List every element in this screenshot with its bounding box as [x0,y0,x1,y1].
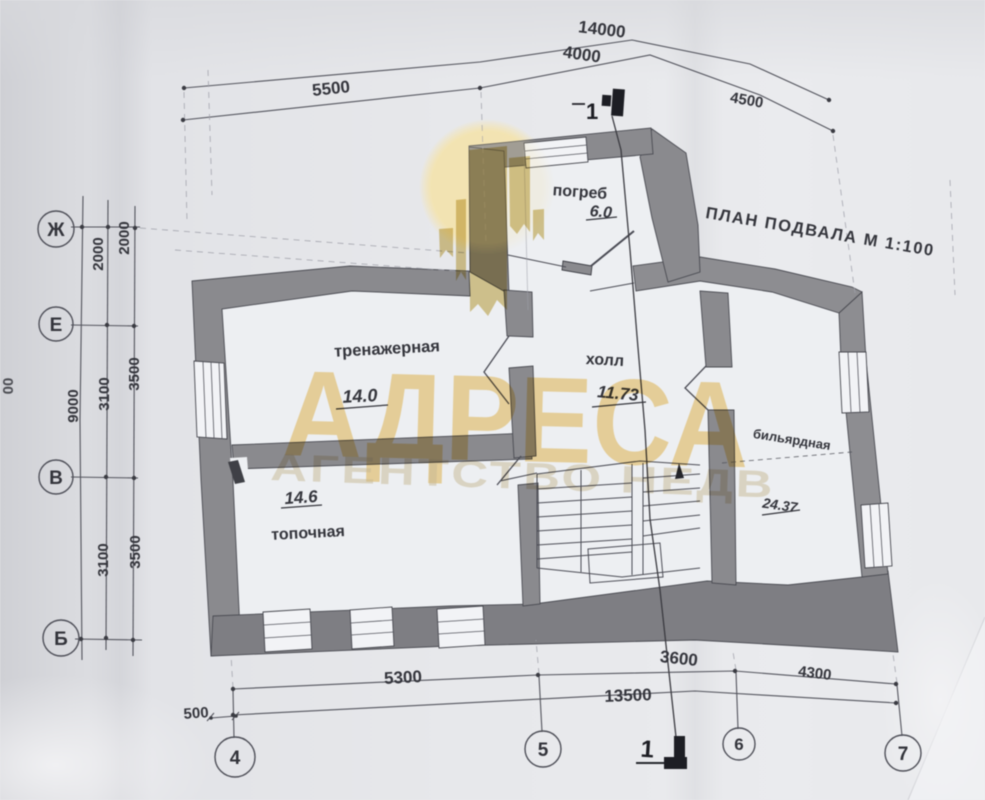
svg-text:3500: 3500 [126,357,143,390]
svg-text:500: 500 [183,704,209,723]
svg-text:1: 1 [586,99,598,124]
svg-text:5500: 5500 [311,77,351,100]
svg-text:2000: 2000 [90,237,107,270]
svg-text:00: 00 [0,378,17,395]
svg-text:5300: 5300 [384,667,423,688]
svg-text:2000: 2000 [116,221,133,254]
svg-text:Е: Е [50,315,63,336]
svg-text:3100: 3100 [95,543,112,576]
svg-text:4: 4 [230,748,241,769]
svg-text:3600: 3600 [659,647,699,670]
svg-text:1: 1 [640,736,655,764]
svg-text:3500: 3500 [127,535,144,568]
svg-text:3100: 3100 [96,377,113,410]
svg-text:5: 5 [538,740,549,761]
svg-text:В: В [49,468,63,489]
svg-text:7: 7 [898,744,909,765]
svg-text:6: 6 [734,735,743,754]
svg-text:Б: Б [54,629,68,650]
svg-text:13500: 13500 [604,685,652,706]
svg-text:9000: 9000 [65,389,82,422]
svg-text:Ж: Ж [46,220,65,241]
